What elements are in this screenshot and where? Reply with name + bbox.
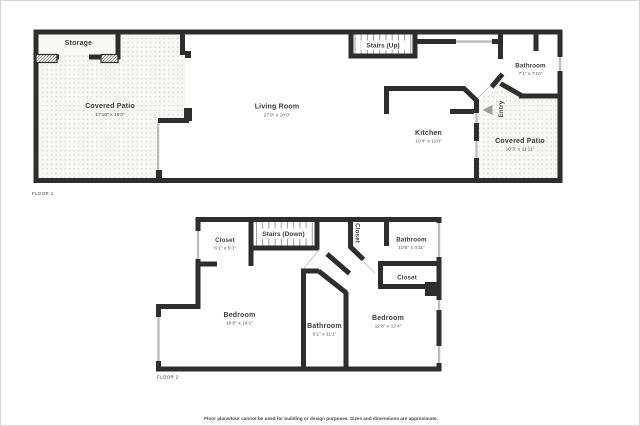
floor1-bathroom-dims: 7'1" x 7'10"	[518, 71, 542, 77]
floor2-wall-chunk	[425, 282, 439, 296]
floor1-storage-label: Storage	[65, 40, 92, 47]
floorplan-svg: Storage Covered Patio 17'10" x 18'0" Liv…	[1, 1, 640, 426]
floor1-storage-sill	[36, 55, 57, 63]
floor2-bedroom-right-label: Bedroom	[372, 315, 404, 322]
floor1-living-room-dims: 27'0" x 18'0"	[264, 113, 291, 119]
floor1-plan: Storage Covered Patio 17'10" x 18'0" Liv…	[32, 30, 563, 197]
floorplan-page: Storage Covered Patio 17'10" x 18'0" Liv…	[0, 0, 640, 426]
floor2-bathroom-middle-label: Bathroom	[307, 323, 342, 330]
floor1-wall-chunk	[156, 170, 162, 181]
floor1-entry-label: Entry	[498, 100, 505, 117]
floor2-bathroom-middle-dims: 5'1" x 11'1"	[313, 332, 337, 338]
floor1-covered-patio-left-dims: 17'10" x 18'0"	[95, 112, 125, 118]
floor2-bedroom-left-dims: 16'6" x 14'1"	[226, 321, 253, 327]
floor1-wall-chunk	[184, 108, 192, 121]
floor2-closet-right-label: Closet	[397, 275, 417, 282]
disclaimer-text: Floor plans/tour cannot be used for buil…	[204, 416, 438, 421]
floor2-closet-top-left-label: Closet	[215, 237, 235, 244]
floor2-bathroom-top-label: Bathroom	[396, 237, 427, 244]
floor1-storage-sill	[101, 55, 118, 63]
floor1-kitchen-dims: 10'4" x 11'0"	[415, 139, 442, 145]
floor2-closet-hall-label: Closet	[354, 223, 361, 243]
floor1-covered-patio-left-label: Covered Patio	[85, 103, 135, 110]
floor2-bedroom-right-dims: 12'8" x 12'4"	[375, 324, 402, 330]
floor1-bathroom-label: Bathroom	[515, 63, 546, 70]
floor2-bathroom-top-dims: 10'5" x 4'11"	[398, 245, 425, 251]
floor1-tag: FLOOR 1	[32, 191, 54, 196]
floor1-covered-patio-right-label: Covered Patio	[495, 138, 545, 145]
floor1-wall-chunk	[185, 51, 191, 58]
floor1-kitchen-label: Kitchen	[415, 130, 442, 137]
floor2-stairs-label: Stairs (Down)	[262, 231, 305, 238]
floor1-living-room-label: Living Room	[255, 104, 300, 111]
floor2-closet-top-left-dims: 6'1" x 5'3"	[214, 246, 236, 252]
floor1-stairs-label: Stairs (Up)	[366, 43, 399, 50]
floor2-bedroom-left-label: Bedroom	[223, 312, 255, 319]
floor2-tag: FLOOR 2	[157, 375, 179, 380]
floor2-plan: Closet 6'1" x 5'3" Stairs (Down) Closet …	[156, 217, 442, 380]
floor1-covered-patio-right-dims: 10'3" x 11'11"	[506, 147, 535, 153]
